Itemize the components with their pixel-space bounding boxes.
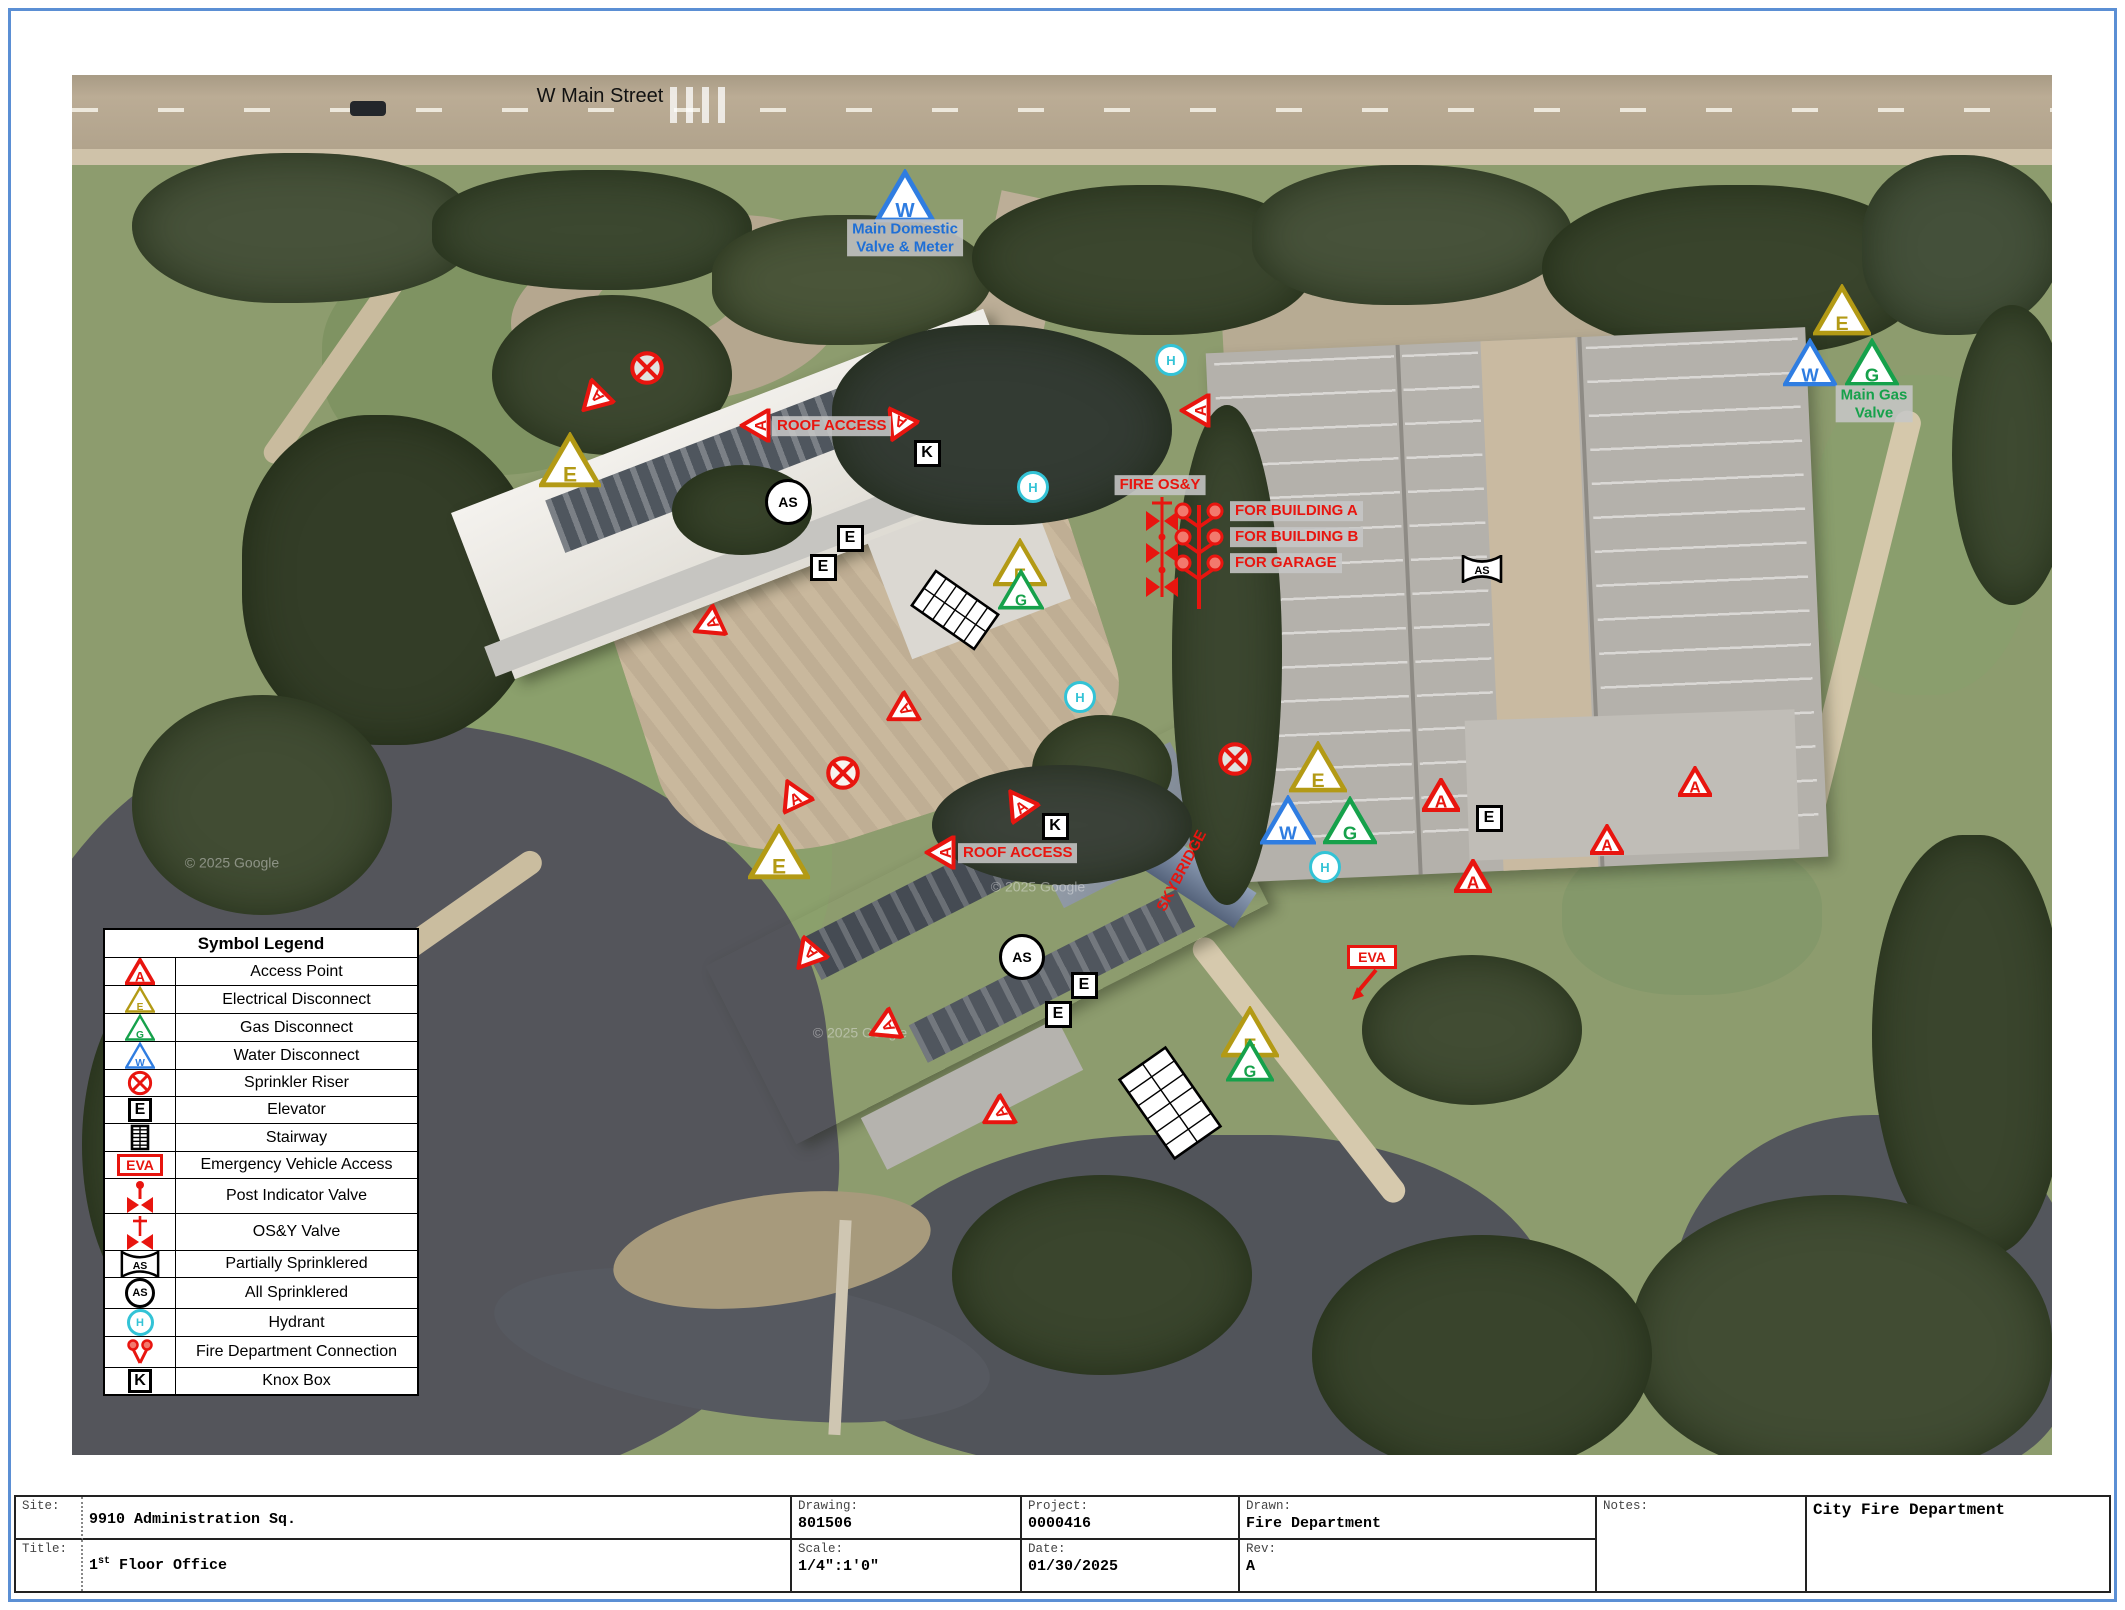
main-domestic-valve-label: Main DomesticValve & Meter — [847, 219, 963, 256]
electrical-disconnect-marker: E — [1289, 741, 1347, 793]
legend-label: Sprinkler Riser — [176, 1070, 417, 1096]
svg-text:A: A — [1435, 791, 1448, 811]
emergency-vehicle-access-marker: EVA — [1347, 945, 1397, 969]
eva-arrow — [1346, 966, 1386, 1006]
fire-osy-label: FIRE OS&Y — [1115, 475, 1206, 495]
access-point-marker: A — [1454, 859, 1492, 893]
elevator-marker: E — [128, 1098, 152, 1122]
legend-icon-cell: EVA — [105, 1152, 176, 1178]
access-point-marker: A — [1180, 393, 1211, 427]
legend-row: EVAEmergency Vehicle Access — [105, 1151, 417, 1178]
legend-icon-cell: K — [105, 1368, 176, 1394]
partially-sprinklered-marker: AS — [119, 1251, 161, 1277]
street-name-label: W Main Street — [537, 85, 664, 109]
access-point-marker: A — [1422, 778, 1460, 812]
legend-row: ASAll Sprinklered — [105, 1277, 417, 1308]
legend-label: Fire Department Connection — [176, 1337, 417, 1367]
post-indicator-valve-icon — [125, 1179, 155, 1213]
svg-text:E: E — [1311, 770, 1324, 792]
roof-access-label-b: ROOF ACCESS — [958, 843, 1077, 863]
legend-icon-cell — [105, 1179, 176, 1213]
gas-disconnect-marker: G — [1323, 796, 1377, 845]
legend-label: Emergency Vehicle Access — [176, 1152, 417, 1178]
sprinkler-riser-marker — [825, 755, 861, 791]
sprinkler-riser-marker — [127, 1070, 153, 1096]
svg-text:A: A — [1689, 779, 1700, 796]
water-disconnect-marker: W — [1260, 795, 1316, 845]
svg-text:A: A — [753, 419, 770, 430]
svg-text:A: A — [1193, 404, 1210, 415]
legend-label: Partially Sprinklered — [176, 1251, 417, 1277]
svg-text:G: G — [136, 1030, 144, 1041]
access-point-marker: A — [125, 958, 155, 985]
knox-box-marker: K — [1042, 813, 1069, 840]
legend-label: Post Indicator Valve — [176, 1179, 417, 1213]
elevator-marker: E — [1045, 1001, 1072, 1028]
electrical-disconnect-marker: E — [125, 986, 155, 1013]
hydrant-marker: H — [127, 1309, 154, 1336]
legend-label: OS&Y Valve — [176, 1214, 417, 1250]
access-point-marker: A — [740, 408, 771, 442]
svg-text:G: G — [1865, 364, 1879, 385]
legend-icon-cell — [105, 1337, 176, 1367]
access-point-marker: A — [925, 835, 956, 869]
stairway-marker — [130, 1124, 150, 1151]
svg-text:W: W — [135, 1058, 145, 1069]
symbol-legend: Symbol Legend AAccess PointEElectrical D… — [103, 928, 419, 1396]
svg-text:G: G — [1015, 592, 1027, 609]
legend-icon-cell: E — [105, 1097, 176, 1123]
legend-title: Symbol Legend — [105, 930, 417, 957]
knox-box-marker: K — [128, 1369, 152, 1393]
fdc-building-b-label: FOR BUILDING B — [1230, 527, 1363, 547]
svg-text:W: W — [1801, 364, 1819, 385]
svg-text:E: E — [137, 1002, 144, 1013]
legend-row: Post Indicator Valve — [105, 1178, 417, 1213]
all-sprinklered-marker: AS — [125, 1278, 155, 1308]
all-sprinklered-marker: AS — [765, 479, 811, 525]
knox-box-marker: K — [914, 440, 941, 467]
legend-icon-cell — [105, 1124, 176, 1151]
legend-label: Hydrant — [176, 1309, 417, 1336]
legend-label: Water Disconnect — [176, 1042, 417, 1069]
legend-icon-cell: E — [105, 986, 176, 1013]
osy-valve-icon — [125, 1214, 155, 1250]
legend-icon-cell: G — [105, 1014, 176, 1041]
legend-icon-cell — [105, 1070, 176, 1096]
legend-row: Sprinkler Riser — [105, 1069, 417, 1096]
legend-row: HHydrant — [105, 1308, 417, 1336]
legend-row: Stairway — [105, 1123, 417, 1151]
legend-row: EElevator — [105, 1096, 417, 1123]
legend-icon-cell: A — [105, 958, 176, 985]
legend-label: Elevator — [176, 1097, 417, 1123]
legend-row: AAccess Point — [105, 957, 417, 985]
all-sprinklered-marker: AS — [999, 934, 1045, 980]
legend-icon-cell — [105, 1214, 176, 1250]
svg-text:AS: AS — [133, 1261, 148, 1272]
electrical-disconnect-marker: E — [539, 432, 601, 488]
sprinkler-riser-marker — [1217, 741, 1253, 777]
fdc-garage-label: FOR GARAGE — [1230, 553, 1342, 573]
google-watermark: © 2025 Google — [185, 855, 279, 872]
main-gas-valve-label: Main GasValve — [1836, 385, 1913, 422]
svg-text:A: A — [938, 846, 955, 857]
gas-disconnect-marker: G — [998, 569, 1044, 610]
hydrant-marker: H — [1064, 681, 1096, 713]
svg-text:A: A — [135, 969, 145, 984]
legend-label: Stairway — [176, 1124, 417, 1151]
gas-disconnect-marker: G — [1845, 338, 1899, 387]
gas-disconnect-marker: G — [1226, 1039, 1274, 1082]
hydrant-marker: H — [1155, 344, 1187, 376]
water-disconnect-marker: W — [1783, 338, 1837, 387]
legend-icon-cell: H — [105, 1309, 176, 1336]
elevator-marker: E — [1071, 972, 1098, 999]
water-disconnect-marker: W — [875, 169, 935, 223]
electrical-disconnect-marker: E — [748, 824, 810, 880]
legend-label: Gas Disconnect — [176, 1014, 417, 1041]
partially-sprinklered-marker: AS — [1460, 555, 1504, 583]
legend-row: OS&Y Valve — [105, 1213, 417, 1250]
elevator-marker: E — [1476, 805, 1503, 832]
fdc-icon — [125, 1337, 155, 1367]
svg-text:A: A — [1601, 837, 1612, 854]
legend-label: All Sprinklered — [176, 1278, 417, 1308]
elevator-marker: E — [810, 554, 837, 581]
svg-text:G: G — [1244, 1063, 1257, 1081]
legend-row: EElectrical Disconnect — [105, 985, 417, 1013]
legend-row: ASPartially Sprinklered — [105, 1250, 417, 1277]
legend-label: Access Point — [176, 958, 417, 985]
legend-row: WWater Disconnect — [105, 1041, 417, 1069]
svg-text:A: A — [1467, 872, 1480, 892]
pre-incident-plan-sheet: Symbol Legend AAccess PointEElectrical D… — [0, 0, 2125, 1610]
fire-department-connection-marker — [1173, 501, 1225, 613]
legend-label: Electrical Disconnect — [176, 986, 417, 1013]
svg-text:E: E — [563, 464, 577, 487]
legend-icon-cell: AS — [105, 1278, 176, 1308]
svg-text:AS: AS — [1474, 565, 1489, 577]
legend-row: Fire Department Connection — [105, 1336, 417, 1367]
svg-text:G: G — [1343, 822, 1357, 843]
legend-icon-cell: W — [105, 1042, 176, 1069]
legend-label: Knox Box — [176, 1368, 417, 1394]
hydrant-marker: H — [1309, 851, 1341, 883]
legend-row: GGas Disconnect — [105, 1013, 417, 1041]
legend-row: KKnox Box — [105, 1367, 417, 1394]
fdc-building-a-label: FOR BUILDING A — [1230, 501, 1363, 521]
electrical-disconnect-marker: E — [1813, 284, 1871, 336]
roof-access-label-a: ROOF ACCESS — [772, 416, 891, 436]
emergency-vehicle-access-marker: EVA — [117, 1154, 163, 1176]
svg-text:E: E — [772, 856, 786, 879]
legend-icon-cell: AS — [105, 1251, 176, 1277]
svg-text:W: W — [1279, 823, 1297, 844]
google-watermark: © 2025 Google — [991, 879, 1085, 896]
hydrant-marker: H — [1017, 471, 1049, 503]
gas-disconnect-marker: G — [125, 1014, 155, 1041]
water-disconnect-marker: W — [125, 1042, 155, 1069]
elevator-marker: E — [837, 525, 864, 552]
svg-text:E: E — [1835, 313, 1848, 335]
access-point-marker: A — [1590, 824, 1624, 855]
sprinkler-riser-marker — [629, 350, 665, 386]
access-point-marker: A — [1678, 766, 1712, 797]
